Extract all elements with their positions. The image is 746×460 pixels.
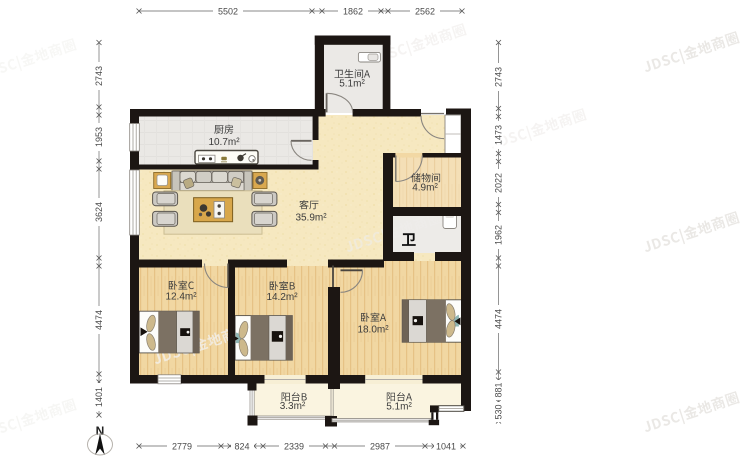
svg-text:1953: 1953 (94, 127, 104, 147)
svg-text:2339: 2339 (284, 442, 304, 452)
svg-text:35.9m²: 35.9m² (295, 213, 327, 224)
svg-text:1401: 1401 (94, 387, 104, 407)
svg-text:10.7m²: 10.7m² (208, 137, 240, 148)
svg-text:4474: 4474 (94, 310, 104, 330)
svg-text:1862: 1862 (343, 7, 363, 17)
svg-text:14.2m²: 14.2m² (266, 292, 298, 303)
svg-text:2022: 2022 (494, 173, 504, 193)
svg-text:1041: 1041 (436, 442, 456, 452)
svg-text:2743: 2743 (94, 66, 104, 86)
svg-text:2987: 2987 (370, 442, 390, 452)
svg-text:4.9m²: 4.9m² (412, 183, 438, 194)
svg-text:824: 824 (234, 442, 249, 452)
svg-text:881: 881 (494, 382, 504, 397)
svg-text:12.4m²: 12.4m² (165, 292, 197, 303)
svg-text:4474: 4474 (494, 309, 504, 329)
svg-text:1962: 1962 (494, 225, 504, 245)
svg-text:3.3m²: 3.3m² (280, 401, 306, 412)
svg-text:18.0m²: 18.0m² (357, 325, 389, 336)
svg-text:2562: 2562 (415, 7, 435, 17)
svg-text:1473: 1473 (494, 125, 504, 145)
svg-text:2743: 2743 (494, 67, 504, 87)
svg-text:5502: 5502 (218, 7, 238, 17)
svg-text:3624: 3624 (94, 202, 104, 222)
svg-text:530: 530 (494, 404, 504, 419)
svg-text:2779: 2779 (172, 442, 192, 452)
svg-text:5.1m²: 5.1m² (339, 79, 365, 90)
svg-text:5.1m²: 5.1m² (386, 402, 412, 413)
